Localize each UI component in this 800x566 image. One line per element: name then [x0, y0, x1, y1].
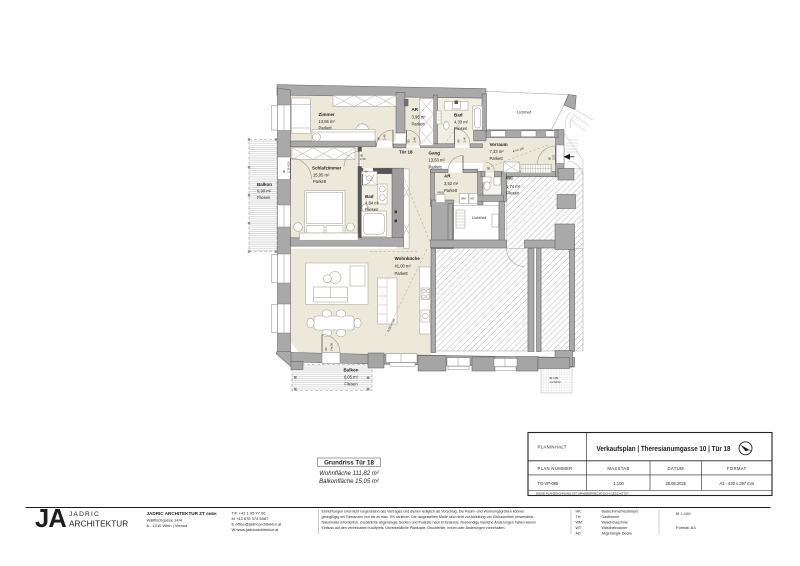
svg-text:1:100: 1:100 [613, 481, 624, 486]
svg-text:Lichthof: Lichthof [517, 110, 532, 115]
svg-text:AR: AR [412, 107, 419, 112]
svg-text:2,40: 2,40 [463, 137, 467, 143]
svg-text:Balkonfläche 15,05 m²: Balkonfläche 15,05 m² [319, 479, 380, 485]
svg-text:Parkett: Parkett [395, 271, 409, 276]
svg-text:PLAN NUMMER: PLAN NUMMER [538, 466, 573, 471]
svg-text:HK:: HK: [576, 510, 582, 514]
svg-text:Zimmer: Zimmer [319, 112, 336, 117]
svg-text:4,33 m²: 4,33 m² [454, 120, 469, 125]
svg-text:Wohnküche: Wohnküche [395, 256, 421, 261]
svg-text:15,05 m²: 15,05 m² [313, 173, 330, 178]
svg-text:Parkett: Parkett [319, 126, 333, 131]
svg-text:Parkett: Parkett [429, 165, 443, 170]
svg-text:DATUM: DATUM [667, 466, 684, 471]
svg-text:JADRIC: JADRIC [69, 511, 100, 518]
svg-text:Fliesen: Fliesen [365, 207, 379, 212]
svg-text:80: 80 [324, 347, 328, 351]
svg-text:Wohnfläche 111,82 m²: Wohnfläche 111,82 m² [319, 471, 379, 477]
svg-text:TG-VP-085: TG-VP-085 [538, 481, 559, 486]
svg-text:FORMAT: FORMAT [727, 466, 747, 471]
svg-text:E office@jadricarchitektur.at: E office@jadricarchitektur.at [232, 522, 283, 527]
svg-text:2,40: 2,40 [360, 157, 366, 161]
svg-text:Parkett: Parkett [412, 122, 426, 127]
svg-text:Naturmaße erforderlich. Zusätz: Naturmaße erforderlich. Zusätzliche abge… [322, 521, 537, 525]
svg-text:4,84 m²: 4,84 m² [365, 201, 380, 206]
svg-text:Fliesen: Fliesen [506, 191, 520, 196]
svg-text:geringfügig mit Toleranzen von: geringfügig mit Toleranzen von bis zu ma… [322, 515, 537, 519]
svg-text:Vorraum: Vorraum [490, 142, 508, 147]
svg-text:Balkon: Balkon [257, 182, 272, 187]
svg-text:TH:: TH: [576, 515, 582, 519]
svg-text:A - 1010 Wien | Vienna: A - 1010 Wien | Vienna [147, 523, 189, 528]
svg-text:1,74 m²: 1,74 m² [506, 184, 521, 189]
svg-text:Tür 18: Tür 18 [399, 150, 413, 155]
svg-text:13,55 m²: 13,55 m² [319, 119, 336, 124]
svg-text:3,96 m²: 3,96 m² [412, 115, 427, 120]
svg-text:2,19 4,50: 2,19 4,50 [287, 161, 291, 173]
svg-text:WM: WM [461, 197, 466, 201]
svg-text:Fix,05: Fix,05 [330, 342, 334, 350]
svg-text:Schlafzimmer: Schlafzimmer [312, 166, 342, 171]
svg-text:2,40: 2,40 [383, 134, 387, 140]
svg-text:Fliesen: Fliesen [344, 382, 358, 387]
svg-text:90: 90 [282, 169, 286, 173]
svg-text:Einfluss auf den vereinbarten: Einfluss auf den vereinbarten Kaufpreis.… [322, 526, 506, 530]
svg-text:Balkon: Balkon [343, 368, 358, 373]
svg-text:AD:: AD: [576, 532, 582, 536]
svg-text:WT: WT [471, 197, 475, 201]
svg-text:41,00 m²: 41,00 m² [395, 264, 412, 269]
svg-text:MASSTAB: MASSTAB [607, 466, 629, 471]
svg-text:6,05 m²: 6,05 m² [344, 375, 359, 380]
svg-text:Lichthof: Lichthof [550, 380, 561, 384]
svg-text:Parkett: Parkett [313, 179, 327, 184]
svg-text:90: 90 [487, 167, 491, 171]
svg-text:M +43 676 374 5587: M +43 676 374 5587 [232, 516, 270, 521]
svg-text:Waschmaschine: Waschmaschine [602, 521, 628, 525]
svg-text:ARCHITEKTUR: ARCHITEKTUR [69, 519, 128, 528]
svg-text:AR: AR [444, 174, 451, 179]
svg-text:7,33 m²: 7,33 m² [490, 149, 505, 154]
svg-text:JADRIC ARCHITEKTUR ZT GMBH: JADRIC ARCHITEKTUR ZT GMBH [147, 511, 217, 516]
svg-text:Parkett: Parkett [444, 188, 458, 193]
svg-text:Format: A3: Format: A3 [676, 525, 696, 530]
svg-text:M 1:100: M 1:100 [676, 511, 691, 516]
svg-text:Badezimmerheizkörper: Badezimmerheizkörper [602, 510, 640, 514]
svg-text:Gastherme: Gastherme [602, 515, 620, 519]
svg-text:W www.jadricarchitektur.at: W www.jadricarchitektur.at [232, 527, 280, 532]
svg-text:Verkaufsplan | Theresianumga: Verkaufsplan | Theresianumgasse 10 | Tür… [597, 444, 731, 453]
svg-text:Einrichtungen sind nicht Gegen: Einrichtungen sind nicht Gegenstand des … [322, 510, 525, 514]
svg-text:Bad: Bad [454, 113, 463, 118]
svg-text:28.08.2025: 28.08.2025 [665, 481, 686, 486]
svg-text:Abgehängte Decke: Abgehängte Decke [602, 532, 633, 536]
svg-text:DIESE PLANZEICHNUNG IST URHEBE: DIESE PLANZEICHNUNG IST URHEBERRECHTLICH… [536, 491, 629, 495]
svg-text:Fliesen: Fliesen [454, 126, 468, 131]
svg-text:90: 90 [457, 139, 461, 143]
svg-text:WC: WC [506, 176, 514, 181]
svg-text:PLANINHALT: PLANINHALT [538, 445, 567, 450]
svg-text:Wallfischgasse 14/4: Wallfischgasse 14/4 [147, 518, 183, 523]
svg-text:90: 90 [407, 139, 411, 143]
svg-text:2,40: 2,40 [413, 137, 417, 143]
svg-text:WT:: WT: [576, 526, 582, 530]
svg-text:(WG): (WG) [438, 191, 445, 195]
svg-text:2,01: 2,01 [552, 154, 556, 160]
svg-text:A3 - 420 x 297 mm: A3 - 420 x 297 mm [719, 481, 754, 486]
svg-text:Gang: Gang [429, 151, 441, 156]
svg-text:9,90 m²: 9,90 m² [257, 189, 272, 194]
svg-text:Lichthof: Lichthof [472, 215, 487, 220]
svg-text:JA: JA [35, 505, 66, 533]
svg-text:Wäschetrockner: Wäschetrockner [602, 526, 629, 530]
svg-text:Fliesen: Fliesen [257, 195, 271, 200]
svg-text:Bad: Bad [365, 194, 374, 199]
svg-text:Parkett: Parkett [490, 156, 504, 161]
svg-text:Grundriss Tür 18: Grundriss Tür 18 [324, 460, 374, 467]
svg-text:WM:: WM: [576, 521, 583, 525]
svg-text:T/F +43 1 95 77 06: T/F +43 1 95 77 06 [232, 511, 267, 516]
svg-text:90: 90 [365, 169, 369, 173]
svg-text:13,63 m²: 13,63 m² [429, 158, 446, 163]
svg-text:3,52 m²: 3,52 m² [444, 181, 459, 186]
svg-text:90: 90 [377, 136, 381, 140]
